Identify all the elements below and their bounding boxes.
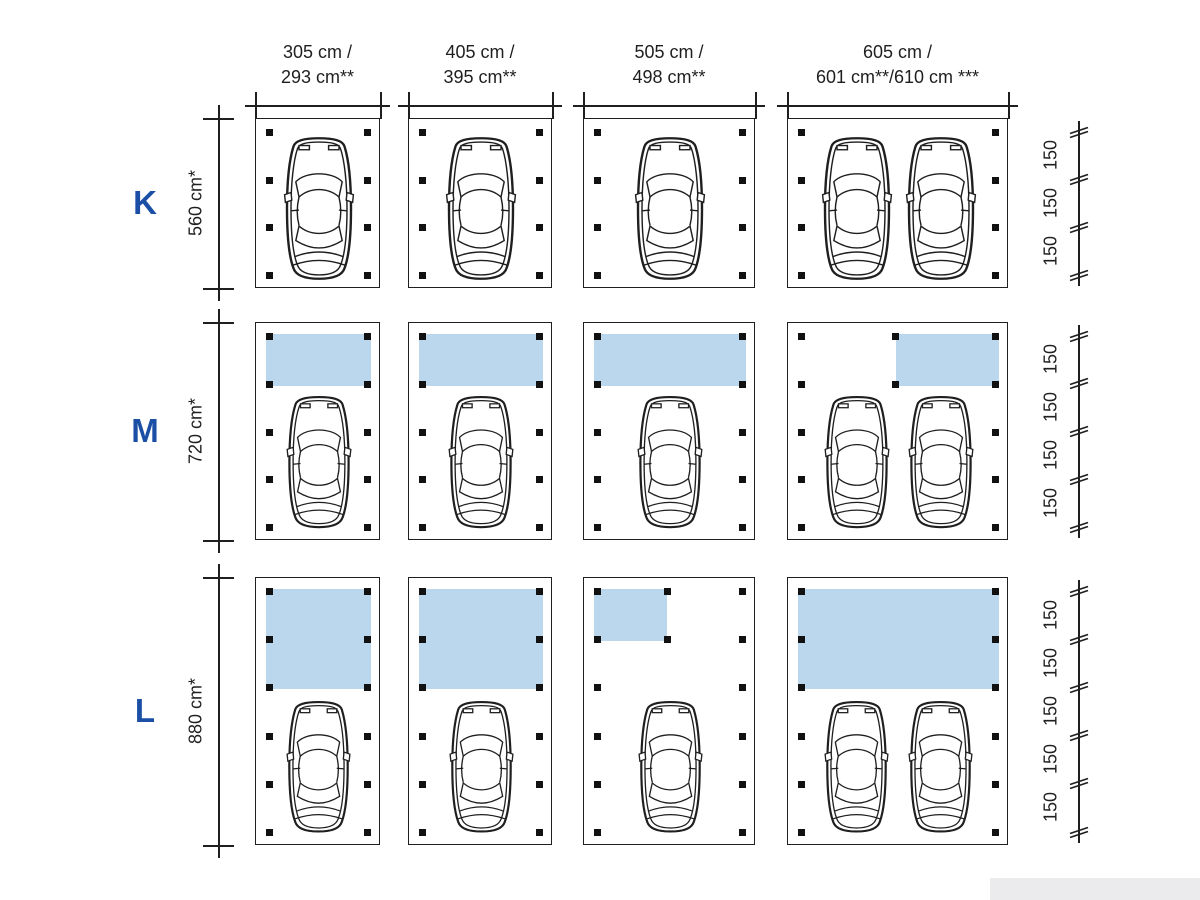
post-marker (364, 129, 371, 136)
spacing-segment-label: 150 (1041, 696, 1062, 726)
width-label-line2: 498 cm** (632, 65, 705, 90)
post-marker (594, 129, 601, 136)
post-marker (266, 829, 273, 836)
canopy-area (266, 334, 371, 386)
post-marker (536, 781, 543, 788)
car-top-view (445, 700, 518, 834)
post-marker (364, 781, 371, 788)
spacing-segment-label: 150 (1041, 648, 1062, 678)
post-marker (594, 224, 601, 231)
post-marker (266, 636, 273, 643)
post-marker (594, 781, 601, 788)
car-top-view (633, 395, 707, 529)
car-top-view-icon (817, 136, 897, 281)
post-marker (992, 476, 999, 483)
post-marker (364, 272, 371, 279)
post-marker (419, 381, 426, 388)
top-dimension-line (573, 105, 765, 107)
post-marker (536, 733, 543, 740)
post-marker (419, 684, 426, 691)
post-marker (266, 684, 273, 691)
car-top-view (817, 136, 897, 281)
car-top-view-icon (820, 395, 894, 529)
post-marker (798, 684, 805, 691)
top-dimension-tick (380, 92, 382, 119)
spacing-dimension-hatch (1069, 678, 1089, 694)
spacing-dimension-hatch (1069, 374, 1089, 390)
car-top-view (820, 700, 893, 834)
post-marker (798, 781, 805, 788)
dimension-hatch-icon (1069, 123, 1089, 139)
dimension-hatch-icon (1069, 518, 1089, 534)
post-marker (992, 272, 999, 279)
spacing-segment-label: 150 (1041, 440, 1062, 470)
post-marker (266, 476, 273, 483)
post-marker (798, 429, 805, 436)
post-marker (892, 333, 899, 340)
post-marker (364, 733, 371, 740)
post-marker (266, 588, 273, 595)
post-marker (419, 829, 426, 836)
spacing-dimension-hatch (1069, 470, 1089, 486)
post-marker (364, 684, 371, 691)
post-marker (992, 588, 999, 595)
post-marker (536, 524, 543, 531)
car-top-view (282, 700, 355, 834)
post-marker (536, 636, 543, 643)
post-marker (536, 129, 543, 136)
post-marker (419, 781, 426, 788)
car-top-view (901, 136, 981, 281)
post-marker (266, 224, 273, 231)
depth-dimension-tick (203, 322, 234, 324)
post-marker (594, 333, 601, 340)
post-marker (364, 476, 371, 483)
post-marker (739, 588, 746, 595)
post-marker (594, 381, 601, 388)
top-dimension-tick (408, 92, 410, 119)
spacing-segment-label: 150 (1041, 792, 1062, 822)
car-top-view (441, 136, 521, 281)
post-marker (364, 177, 371, 184)
row-depth-label: 560 cm* (186, 170, 207, 236)
post-marker (419, 733, 426, 740)
post-marker (364, 333, 371, 340)
row-size-label: M (131, 412, 159, 450)
width-label-line1: 405 cm / (443, 40, 516, 65)
car-top-view-icon (444, 395, 518, 529)
post-marker (536, 829, 543, 836)
width-label-line2: 395 cm** (443, 65, 516, 90)
post-marker (739, 476, 746, 483)
post-marker (798, 381, 805, 388)
car-top-view-icon (445, 700, 518, 834)
post-marker (798, 224, 805, 231)
post-marker (594, 733, 601, 740)
dimension-hatch-icon (1069, 374, 1089, 390)
post-marker (739, 272, 746, 279)
post-marker (536, 333, 543, 340)
depth-dimension-tick (203, 118, 234, 120)
car-top-view (282, 395, 356, 529)
post-marker (992, 129, 999, 136)
width-label-line1: 605 cm / (816, 40, 979, 65)
car-top-view-icon (633, 395, 707, 529)
top-dimension-tick (583, 92, 585, 119)
spacing-segment-label: 150 (1041, 188, 1062, 218)
spacing-segment-label: 150 (1041, 236, 1062, 266)
spacing-dimension-hatch (1069, 582, 1089, 598)
width-label-line1: 305 cm / (281, 40, 354, 65)
post-marker (739, 636, 746, 643)
post-marker (364, 381, 371, 388)
carport-cell (583, 322, 755, 540)
post-marker (739, 684, 746, 691)
post-marker (364, 588, 371, 595)
spacing-dimension-line (1078, 580, 1080, 843)
post-marker (364, 829, 371, 836)
post-marker (536, 684, 543, 691)
post-marker (419, 333, 426, 340)
spacing-segment-label: 150 (1041, 392, 1062, 422)
spacing-dimension-hatch (1069, 422, 1089, 438)
car-top-view-icon (820, 700, 893, 834)
post-marker (419, 636, 426, 643)
post-marker (798, 333, 805, 340)
post-marker (664, 588, 671, 595)
post-marker (419, 177, 426, 184)
post-marker (266, 524, 273, 531)
post-marker (536, 177, 543, 184)
car-top-view-icon (630, 136, 710, 281)
post-marker (739, 829, 746, 836)
post-marker (266, 381, 273, 388)
top-dimension-line (777, 105, 1018, 107)
row-size-label: K (133, 184, 157, 222)
post-marker (798, 476, 805, 483)
post-marker (798, 733, 805, 740)
width-label-line1: 505 cm / (632, 40, 705, 65)
dimension-hatch-icon (1069, 678, 1089, 694)
spacing-dimension-hatch (1069, 327, 1089, 343)
post-marker (266, 272, 273, 279)
canopy-area (896, 334, 1000, 386)
carport-cell (408, 577, 552, 845)
post-marker (536, 476, 543, 483)
post-marker (536, 588, 543, 595)
top-dimension-tick (255, 92, 257, 119)
carport-cell (255, 322, 380, 540)
depth-dimension-line (218, 564, 220, 858)
post-marker (992, 829, 999, 836)
carport-cell (787, 322, 1008, 540)
car-top-view (904, 700, 977, 834)
top-dimension-tick (787, 92, 789, 119)
canopy-area (594, 589, 667, 641)
post-marker (739, 381, 746, 388)
post-marker (266, 429, 273, 436)
spacing-segment-label: 150 (1041, 488, 1062, 518)
car-top-view-icon (901, 136, 981, 281)
post-marker (992, 333, 999, 340)
post-marker (739, 524, 746, 531)
car-top-view-icon (904, 700, 977, 834)
carport-cell (408, 322, 552, 540)
post-marker (419, 272, 426, 279)
post-marker (594, 272, 601, 279)
post-marker (266, 177, 273, 184)
post-marker (536, 429, 543, 436)
dimension-hatch-icon (1069, 327, 1089, 343)
dimension-hatch-icon (1069, 170, 1089, 186)
spacing-dimension-hatch (1069, 823, 1089, 839)
post-marker (364, 636, 371, 643)
dimension-hatch-icon (1069, 266, 1089, 282)
post-marker (536, 272, 543, 279)
post-marker (992, 636, 999, 643)
car-top-view (279, 136, 359, 281)
dimension-hatch-icon (1069, 630, 1089, 646)
canopy-area (266, 589, 371, 689)
post-marker (798, 272, 805, 279)
post-marker (594, 636, 601, 643)
car-top-view-icon (634, 700, 707, 834)
dimension-hatch-icon (1069, 470, 1089, 486)
post-marker (992, 524, 999, 531)
car-top-view-icon (441, 136, 521, 281)
carport-cell (787, 577, 1008, 845)
post-marker (364, 429, 371, 436)
row-depth-label: 720 cm* (186, 398, 207, 464)
top-dimension-tick (552, 92, 554, 119)
spacing-dimension-hatch (1069, 774, 1089, 790)
post-marker (798, 829, 805, 836)
depth-dimension-tick (203, 577, 234, 579)
depth-dimension-tick (203, 540, 234, 542)
depth-dimension-tick (203, 845, 234, 847)
spacing-dimension-line (1078, 121, 1080, 286)
carport-cell (583, 577, 755, 845)
post-marker (266, 781, 273, 788)
spacing-dimension-hatch (1069, 518, 1089, 534)
canopy-area (798, 589, 999, 689)
carport-cell (583, 118, 755, 288)
post-marker (992, 684, 999, 691)
post-marker (798, 524, 805, 531)
post-marker (266, 333, 273, 340)
spacing-dimension-hatch (1069, 123, 1089, 139)
post-marker (992, 224, 999, 231)
carport-size-diagram: 305 cm /293 cm**405 cm /395 cm**505 cm /… (0, 0, 1200, 900)
dimension-hatch-icon (1069, 823, 1089, 839)
post-marker (594, 588, 601, 595)
post-marker (594, 829, 601, 836)
car-top-view-icon (282, 395, 356, 529)
canopy-area (419, 334, 543, 386)
post-marker (664, 636, 671, 643)
spacing-segment-label: 150 (1041, 744, 1062, 774)
carport-cell (255, 118, 380, 288)
top-dimension-tick (1008, 92, 1010, 119)
canopy-area (594, 334, 746, 386)
post-marker (594, 429, 601, 436)
post-marker (892, 381, 899, 388)
post-marker (536, 224, 543, 231)
car-top-view (904, 395, 978, 529)
column-width-label: 305 cm /293 cm** (281, 40, 354, 90)
car-top-view-icon (279, 136, 359, 281)
post-marker (739, 177, 746, 184)
column-width-label: 405 cm /395 cm** (443, 40, 516, 90)
spacing-dimension-hatch (1069, 726, 1089, 742)
carport-cell (408, 118, 552, 288)
post-marker (419, 224, 426, 231)
width-label-line2: 601 cm**/610 cm *** (816, 65, 979, 90)
post-marker (594, 684, 601, 691)
dimension-hatch-icon (1069, 726, 1089, 742)
car-top-view-icon (904, 395, 978, 529)
carport-cell (787, 118, 1008, 288)
spacing-dimension-hatch (1069, 170, 1089, 186)
post-marker (536, 381, 543, 388)
post-marker (992, 781, 999, 788)
row-depth-label: 880 cm* (186, 678, 207, 744)
post-marker (739, 129, 746, 136)
column-width-label: 605 cm /601 cm**/610 cm *** (816, 40, 979, 90)
car-top-view (630, 136, 710, 281)
post-marker (266, 129, 273, 136)
car-top-view (444, 395, 518, 529)
post-marker (594, 476, 601, 483)
spacing-dimension-hatch (1069, 218, 1089, 234)
post-marker (798, 588, 805, 595)
car-top-view (634, 700, 707, 834)
width-label-line2: 293 cm** (281, 65, 354, 90)
post-marker (739, 781, 746, 788)
top-dimension-line (245, 105, 390, 107)
depth-dimension-tick (203, 288, 234, 290)
row-size-label: L (135, 692, 155, 730)
spacing-dimension-hatch (1069, 266, 1089, 282)
spacing-segment-label: 150 (1041, 344, 1062, 374)
post-marker (419, 429, 426, 436)
dimension-hatch-icon (1069, 774, 1089, 790)
depth-dimension-line (218, 105, 220, 301)
post-marker (739, 429, 746, 436)
post-marker (992, 381, 999, 388)
post-marker (419, 129, 426, 136)
post-marker (739, 224, 746, 231)
top-dimension-tick (755, 92, 757, 119)
post-marker (798, 129, 805, 136)
bottom-right-gray-strip (990, 878, 1200, 900)
carport-cell (255, 577, 380, 845)
post-marker (594, 177, 601, 184)
post-marker (266, 733, 273, 740)
post-marker (739, 333, 746, 340)
dimension-hatch-icon (1069, 422, 1089, 438)
post-marker (992, 733, 999, 740)
car-top-view-icon (282, 700, 355, 834)
depth-dimension-line (218, 309, 220, 553)
dimension-hatch-icon (1069, 582, 1089, 598)
post-marker (992, 429, 999, 436)
post-marker (419, 588, 426, 595)
post-marker (798, 636, 805, 643)
post-marker (364, 224, 371, 231)
dimension-hatch-icon (1069, 218, 1089, 234)
post-marker (419, 524, 426, 531)
post-marker (419, 476, 426, 483)
top-dimension-line (398, 105, 562, 107)
canopy-area (419, 589, 543, 689)
post-marker (364, 524, 371, 531)
post-marker (992, 177, 999, 184)
post-marker (798, 177, 805, 184)
spacing-segment-label: 150 (1041, 600, 1062, 630)
spacing-dimension-hatch (1069, 630, 1089, 646)
car-top-view (820, 395, 894, 529)
post-marker (739, 733, 746, 740)
column-width-label: 505 cm /498 cm** (632, 40, 705, 90)
spacing-segment-label: 150 (1041, 140, 1062, 170)
post-marker (594, 524, 601, 531)
